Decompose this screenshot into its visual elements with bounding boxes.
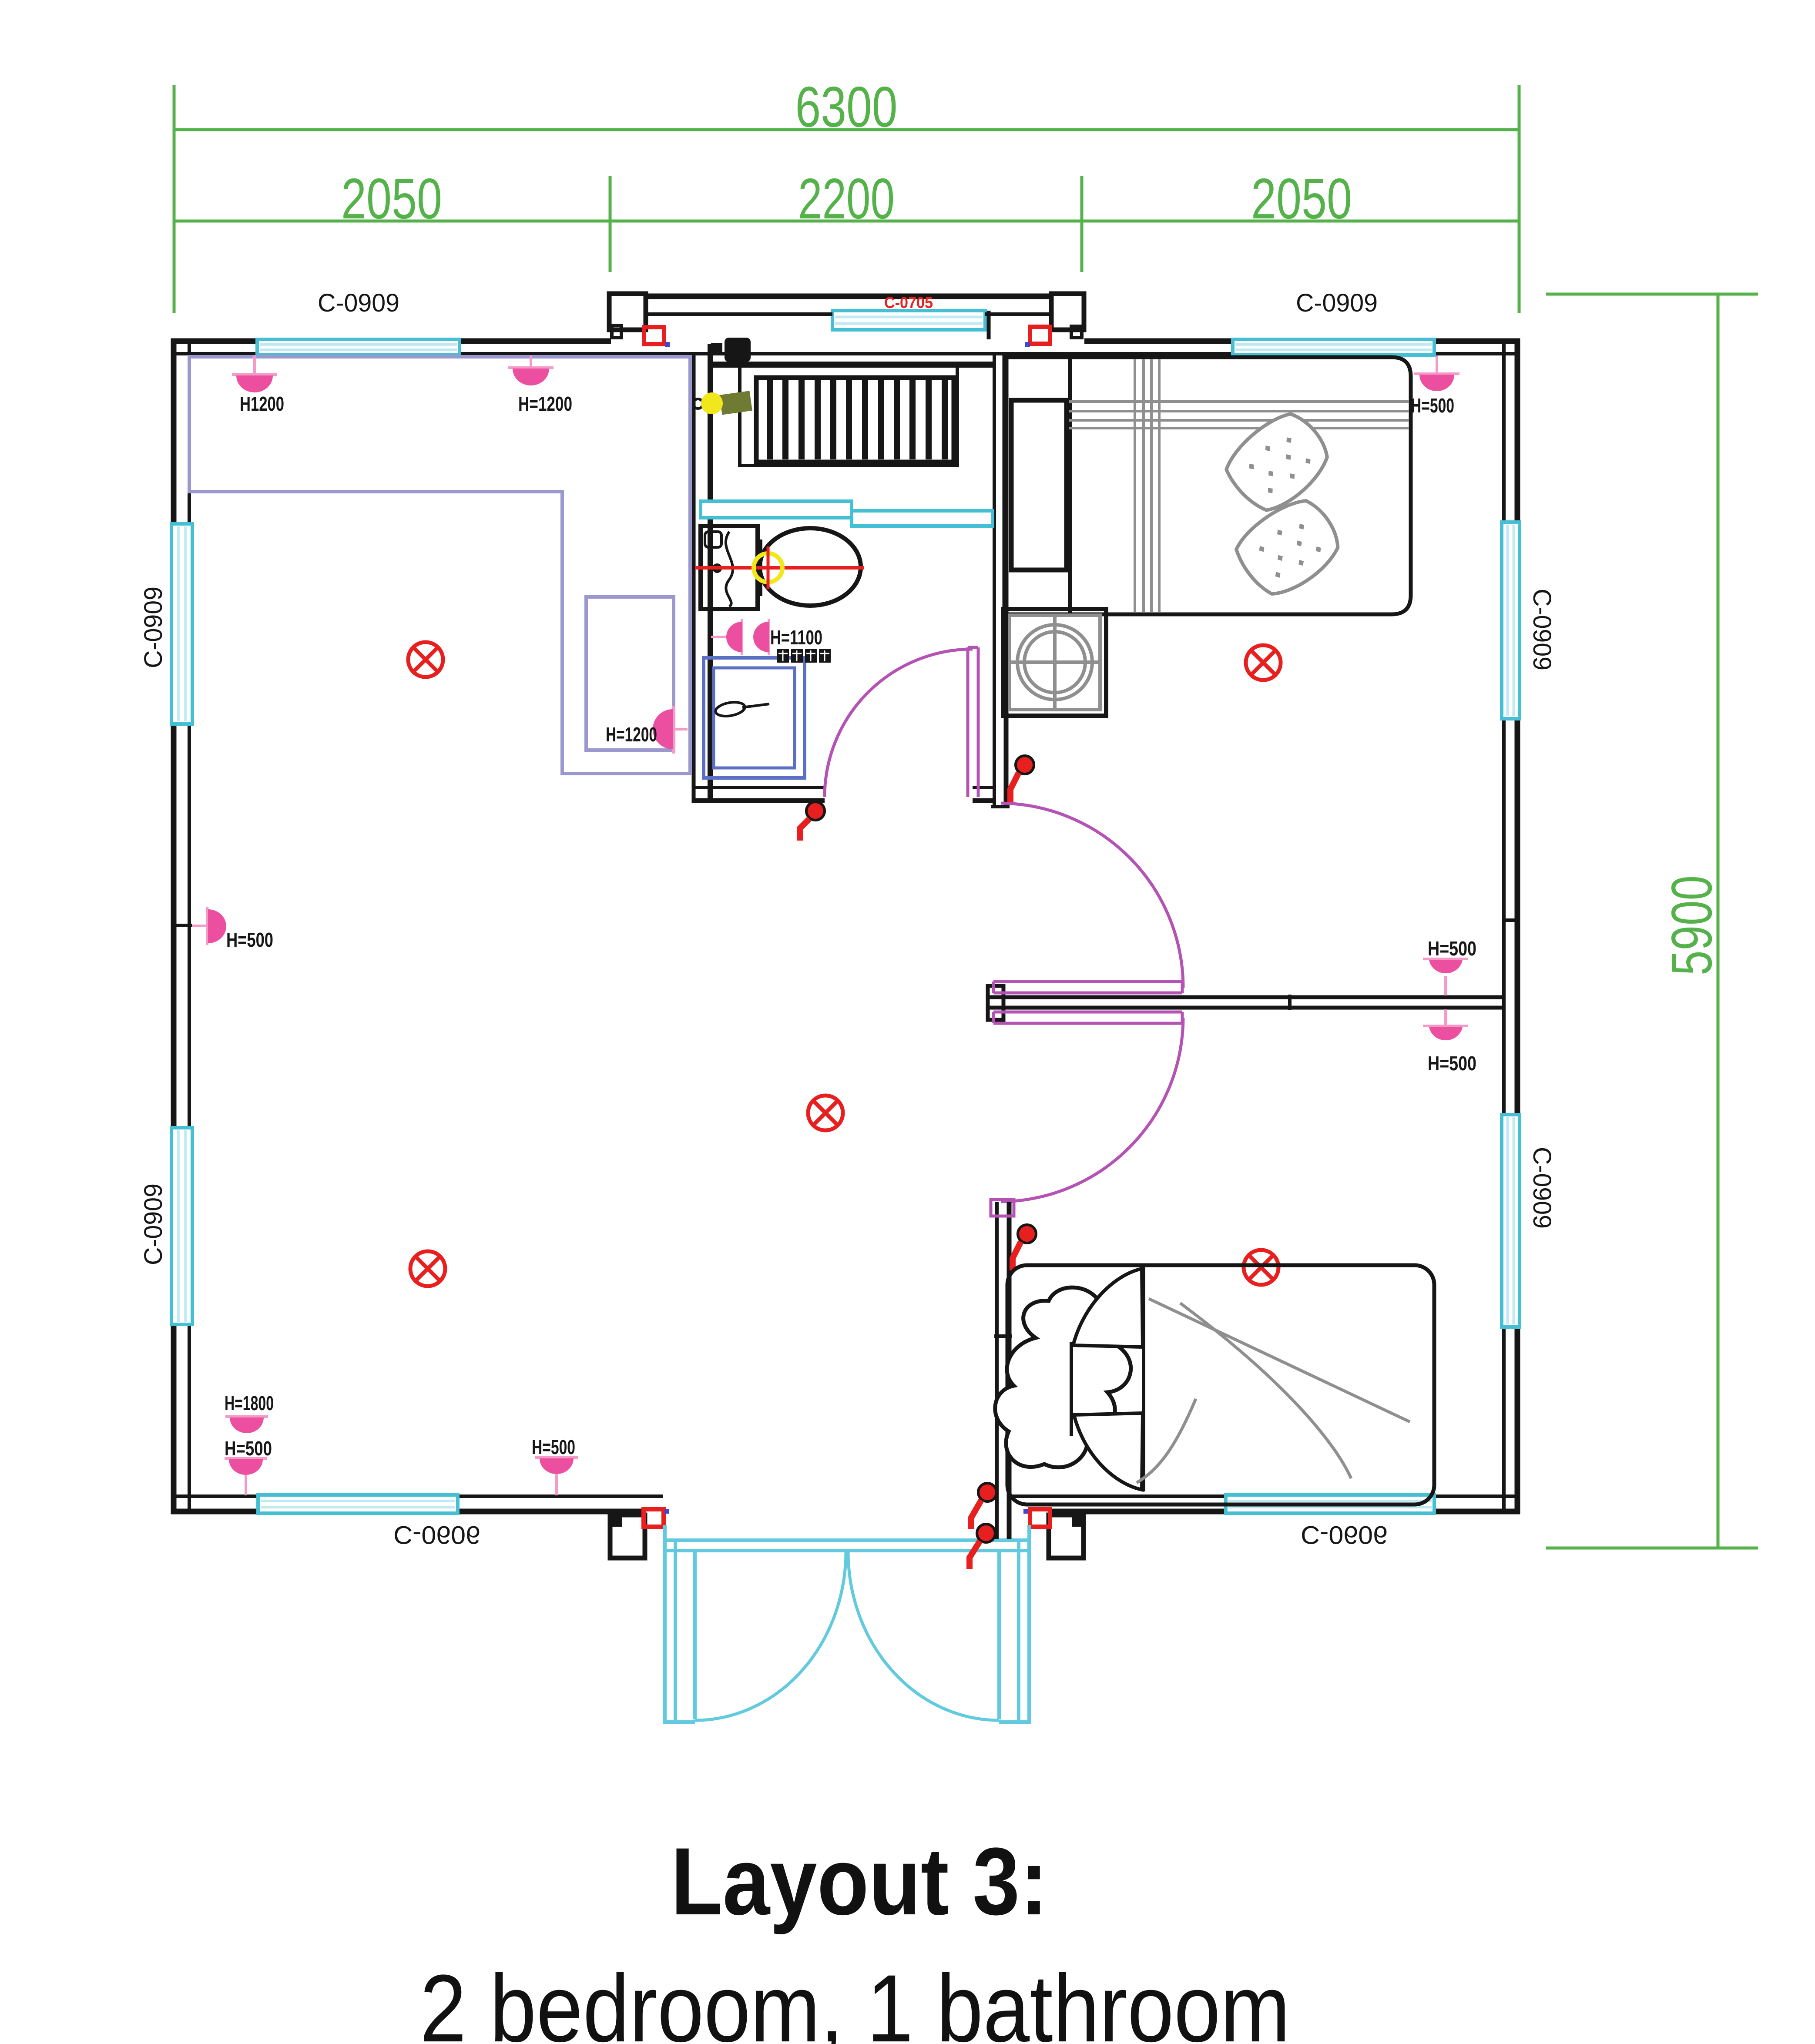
svg-text:C-0909: C-0909 [1528, 1147, 1556, 1229]
svg-text:2200: 2200 [798, 167, 895, 231]
svg-text:H=1800: H=1800 [225, 1392, 274, 1414]
svg-text:2 bedroom, 1 bathroom: 2 bedroom, 1 bathroom [420, 1955, 1290, 2044]
svg-text:C-0606: C-0606 [1301, 1521, 1388, 1549]
svg-text:H=1200: H=1200 [518, 392, 572, 415]
svg-text:C-0705: C-0705 [884, 294, 933, 312]
svg-text:H=500: H=500 [1428, 937, 1476, 960]
svg-text:C-0909: C-0909 [139, 1183, 168, 1265]
svg-text:6300: 6300 [795, 75, 898, 139]
svg-text:H=500: H=500 [1411, 394, 1454, 417]
svg-text:H=500: H=500 [226, 928, 273, 951]
svg-text:5900: 5900 [1660, 875, 1724, 975]
svg-text:C-0909: C-0909 [139, 586, 168, 668]
svg-text:2050: 2050 [1251, 167, 1352, 231]
svg-text:H=500: H=500 [225, 1437, 272, 1460]
svg-text:H=500: H=500 [1428, 1052, 1476, 1075]
svg-text:C-0909: C-0909 [1528, 589, 1556, 670]
svg-text:H=1100: H=1100 [770, 626, 822, 649]
svg-text:C-0606: C-0606 [393, 1521, 480, 1549]
svg-text:Layout 3:: Layout 3: [671, 1828, 1048, 1935]
svg-text:H1200: H1200 [240, 392, 284, 415]
svg-text:H=500: H=500 [532, 1436, 575, 1458]
svg-text:C-0909: C-0909 [318, 289, 399, 317]
svg-text:2050: 2050 [341, 167, 442, 231]
svg-text:C-0909: C-0909 [1296, 289, 1378, 317]
svg-text:H=1200: H=1200 [606, 723, 657, 746]
